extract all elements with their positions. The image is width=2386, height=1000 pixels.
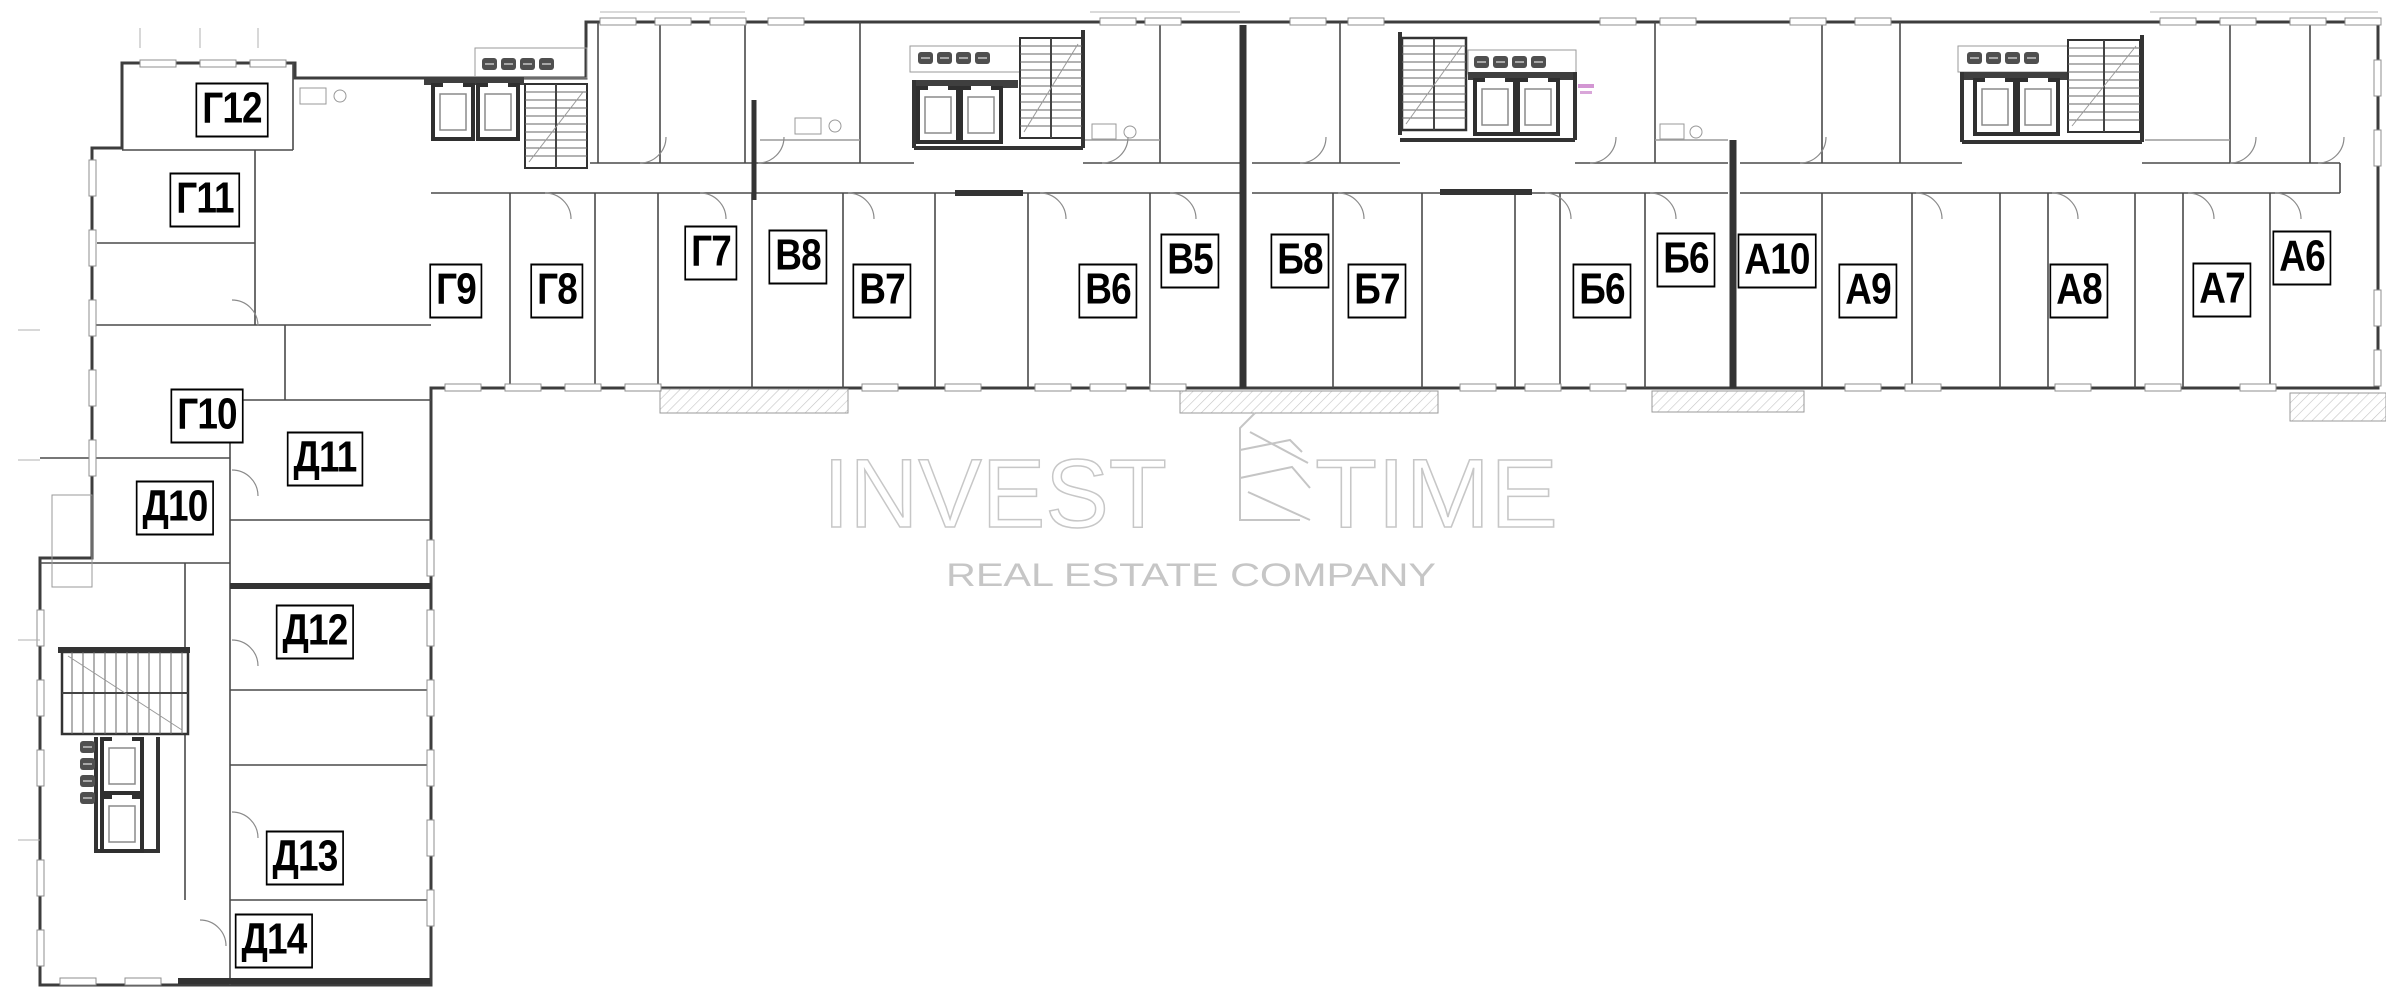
unit-label-g9[interactable]: Г9: [429, 264, 482, 319]
unit-label-a9[interactable]: А9: [1838, 264, 1897, 319]
unit-label-text: А6: [2279, 232, 2325, 281]
unit-label-d13[interactable]: Д13: [266, 831, 344, 886]
unit-label-text: В8: [775, 231, 821, 280]
unit-label-text: А7: [2199, 264, 2245, 313]
unit-label-text: Б6: [1663, 234, 1708, 283]
unit-label-text: В6: [1085, 265, 1131, 314]
unit-label-v7[interactable]: В7: [852, 264, 911, 319]
unit-label-d10[interactable]: Д10: [136, 481, 214, 536]
unit-label-v8[interactable]: В8: [768, 230, 827, 285]
unit-label-b6-right[interactable]: Б6: [1657, 233, 1716, 288]
unit-label-text: А8: [2056, 265, 2102, 314]
floorplan-page: INVEST TIME REAL ESTATE COMPANY Г12 Г11 …: [0, 0, 2386, 1000]
unit-label-a6[interactable]: А6: [2272, 231, 2331, 286]
unit-label-text: Г7: [691, 227, 731, 276]
unit-label-d12[interactable]: Д12: [276, 605, 354, 660]
unit-label-text: Б6: [1579, 265, 1624, 314]
unit-label-text: Д14: [242, 915, 307, 964]
unit-label-text: Д13: [273, 832, 338, 881]
unit-label-text: Г8: [537, 265, 577, 314]
unit-label-b7[interactable]: Б7: [1348, 264, 1407, 319]
unit-label-a10[interactable]: А10: [1738, 234, 1817, 289]
unit-label-g10[interactable]: Г10: [171, 389, 244, 444]
unit-label-text: Д11: [294, 433, 357, 482]
unit-label-text: Д12: [283, 606, 348, 655]
unit-label-g12[interactable]: Г12: [196, 83, 269, 138]
unit-label-g8[interactable]: Г8: [530, 264, 583, 319]
unit-label-g11[interactable]: Г11: [170, 173, 241, 228]
unit-label-v6[interactable]: В6: [1078, 264, 1137, 319]
unit-label-d11[interactable]: Д11: [287, 432, 363, 487]
unit-label-a7[interactable]: А7: [2192, 263, 2251, 318]
unit-label-text: Г10: [177, 390, 237, 439]
unit-label-v5[interactable]: В5: [1160, 234, 1219, 289]
unit-label-text: А9: [1845, 265, 1891, 314]
unit-label-g7[interactable]: Г7: [684, 226, 737, 281]
unit-label-a8[interactable]: А8: [2049, 264, 2108, 319]
unit-label-b6-left[interactable]: Б6: [1573, 264, 1632, 319]
unit-label-text: Г12: [202, 84, 262, 133]
unit-label-text: Б7: [1354, 265, 1399, 314]
unit-label-text: В7: [859, 265, 905, 314]
unit-label-d14[interactable]: Д14: [235, 914, 313, 969]
unit-label-text: А10: [1744, 235, 1809, 284]
unit-label-b8[interactable]: Б8: [1271, 234, 1330, 289]
unit-label-text: Г9: [436, 265, 476, 314]
unit-labels-layer: Г12 Г11 Г10 Д10 Д11 Д12 Д13 Д14 Г9 Г8 Г7…: [0, 0, 2386, 1000]
unit-label-text: Б8: [1277, 235, 1322, 284]
unit-label-text: В5: [1167, 235, 1213, 284]
unit-label-text: Д10: [143, 482, 208, 531]
unit-label-text: Г11: [176, 174, 234, 223]
